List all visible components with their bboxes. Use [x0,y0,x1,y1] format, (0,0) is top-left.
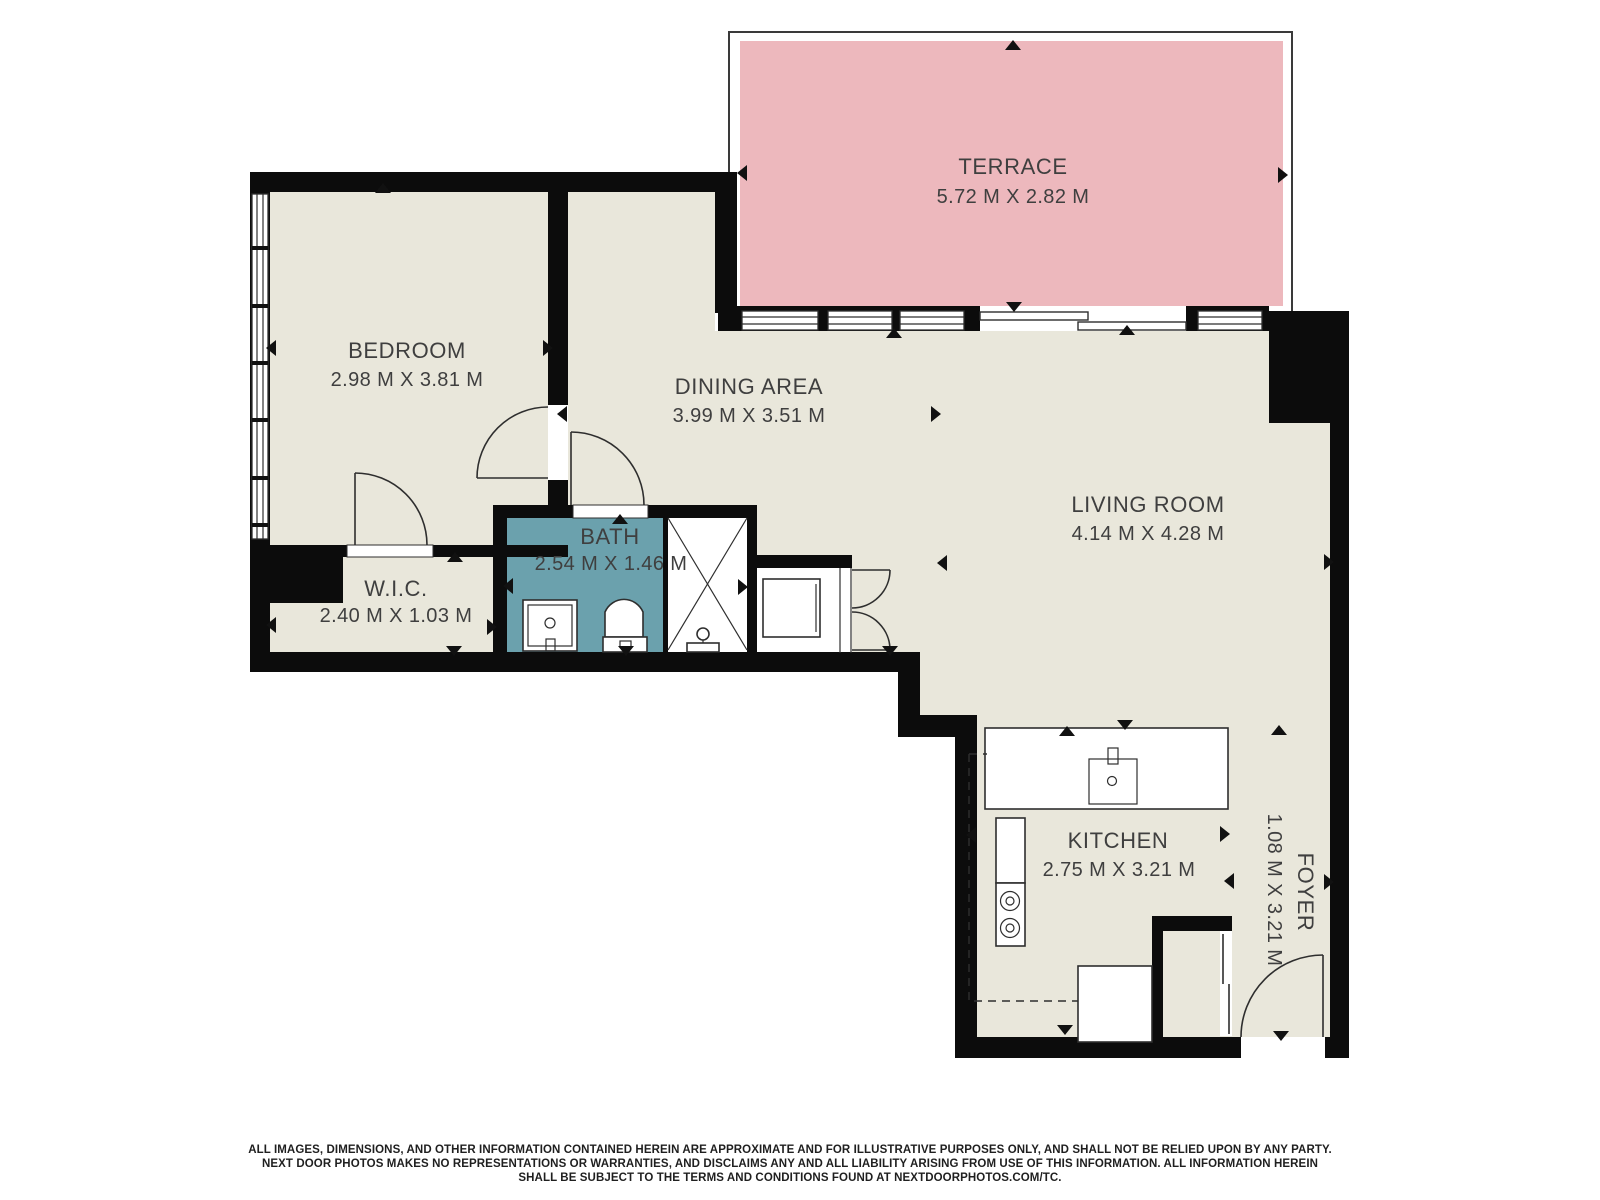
window-mullion [252,523,268,527]
wall-segment [747,518,757,653]
wall-segment [250,172,737,192]
wall-segment [1152,916,1163,1037]
room-dims-label: 5.72 M X 2.82 M [937,186,1090,208]
room-dims-label: 3.99 M X 3.51 M [673,405,826,427]
disclaimer: ALL IMAGES, DIMENSIONS, AND OTHER INFORM… [248,1144,1332,1184]
disclaimer-line: ALL IMAGES, DIMENSIONS, AND OTHER INFORM… [248,1144,1332,1156]
room-name-label: LIVING ROOM [1071,492,1224,517]
room-name-label: W.I.C. [364,576,428,601]
sliding-door-panel [980,312,1088,320]
closet-door-jamb [1220,931,1232,1036]
disclaimer-line: NEXT DOOR PHOTOS MAKES NO REPRESENTATION… [262,1158,1318,1170]
window-glass [1198,311,1262,330]
sliding-door-panel [1078,322,1186,330]
toilet [603,599,647,652]
window-mullion [252,246,268,250]
window-mullion [252,418,268,422]
washer-icon [763,579,820,637]
wall-segment [898,715,977,737]
room-name-label: TERRACE [958,154,1067,179]
window-mullion [252,304,268,308]
wall-segment [747,555,852,568]
room-dims-label: 2.54 M X 1.46 M [535,553,688,575]
room-dims-label: 2.98 M X 3.81 M [331,369,484,391]
room-dims-label: 1.08 M X 3.21 M [1263,814,1285,967]
door-threshold [347,545,433,557]
wall-segment [955,737,977,1058]
window-glass [828,311,892,330]
base-cabinet [1078,966,1152,1042]
wall-segment [663,518,668,653]
disclaimer-line: SHALL BE SUBJECT TO THE TERMS AND CONDIT… [518,1172,1061,1184]
shower-base [687,643,719,652]
wall-segment [250,652,920,672]
sliding-door [980,306,1186,331]
room-name-label: KITCHEN [1068,828,1169,853]
window-glass [900,311,964,330]
sink-counter [523,600,577,651]
kitchen-island [985,728,1228,809]
island-counter [985,728,1228,809]
room-name-label: BATH [580,524,639,549]
window-mullion [252,361,268,365]
room-name-label: DINING AREA [675,374,823,399]
stove [996,883,1025,946]
kitchen-counter [996,818,1025,883]
wall-segment [898,652,920,715]
wall-segment [715,172,737,313]
bedroom-window [252,194,268,539]
floor-plan-page: TERRACE 5.72 M X 2.82 M BEDROOM 2.98 M X… [0,0,1600,1200]
window-mullion [252,476,268,480]
room-name-label: BEDROOM [348,338,466,363]
wall-segment [1152,916,1232,931]
room-dims-label: 4.14 M X 4.28 M [1072,523,1225,545]
floor-plan-canvas: TERRACE 5.72 M X 2.82 M BEDROOM 2.98 M X… [0,0,1600,1200]
door-threshold [573,505,648,518]
bath-sink [523,600,577,651]
window-glass [742,311,818,330]
room-name-label: FOYER [1293,853,1318,932]
room-dims-label: 2.75 M X 3.21 M [1043,859,1196,881]
window-glass [252,194,268,539]
toilet-bowl [605,599,643,637]
room-dims-label: 2.40 M X 1.03 M [320,605,473,627]
wall-segment [1269,311,1349,423]
shower-head-icon [697,628,709,640]
door-threshold [1241,1037,1325,1058]
wall-segment [1330,415,1349,1058]
